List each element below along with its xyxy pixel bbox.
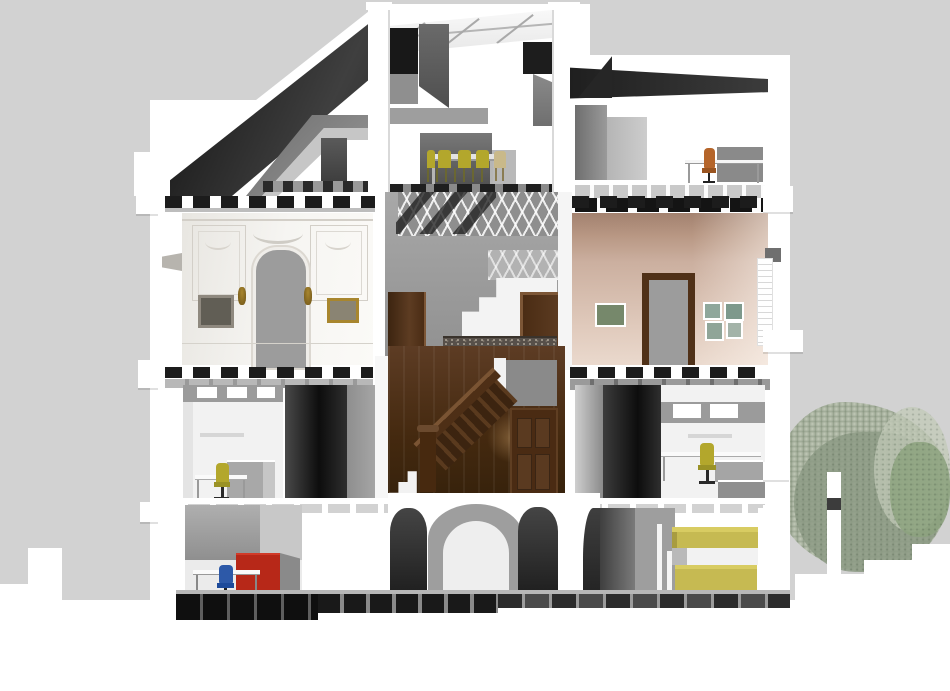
office-right	[661, 385, 765, 505]
dado-line	[182, 343, 373, 344]
office-chair-blue-back	[219, 565, 233, 583]
cornice-right	[763, 330, 803, 352]
framed-picture	[726, 321, 743, 339]
ceiling-panel	[710, 404, 738, 418]
cornice-molding-line	[182, 219, 373, 221]
attic-desk-leg	[757, 164, 759, 183]
vault-pier-partial	[583, 508, 600, 592]
attic-gray-band	[388, 108, 488, 124]
structural-column-dark	[285, 385, 347, 502]
slab-line-left	[165, 208, 375, 212]
salon-door-frame	[642, 273, 695, 365]
office-chair-yellow-back	[216, 463, 229, 483]
ground-step	[912, 544, 950, 562]
ceiling-panel	[197, 387, 217, 398]
attic-left-door	[321, 138, 347, 182]
vault-pier	[390, 508, 427, 594]
ground-step	[864, 560, 950, 576]
foliage-blob-bright	[890, 442, 950, 537]
newel-cap	[417, 425, 439, 432]
framed-picture-gold	[327, 298, 359, 323]
dining-chair-legs	[427, 168, 489, 182]
newel-post	[420, 430, 436, 492]
ceiling-panel	[673, 404, 701, 418]
stairwell-white-edge	[558, 192, 572, 370]
vault-pier	[518, 507, 558, 594]
dining-chair	[438, 150, 451, 168]
attic-office-wall	[575, 105, 607, 180]
architectural-section-scene	[0, 0, 950, 691]
dining-chair-beige	[494, 151, 506, 168]
dining-chair-beige-legs	[495, 168, 505, 181]
wall-white-strip	[375, 356, 388, 502]
ground-step	[795, 574, 950, 604]
stucco-salon	[182, 213, 373, 365]
cornice-left	[138, 360, 158, 388]
attic-left-floor-tiles	[263, 181, 375, 192]
office-chair-yellow-back	[700, 443, 714, 465]
joist-dashes-right	[572, 196, 767, 208]
foundation-tiles-mid	[318, 594, 498, 613]
salon-arched-doorway	[253, 247, 309, 368]
office-chair-orange-back	[704, 148, 715, 168]
storage-wall-dark	[600, 508, 635, 592]
door-panel	[517, 418, 532, 448]
stucco-panel	[310, 225, 368, 301]
garden-wall	[827, 510, 841, 574]
whiteboard	[200, 433, 244, 437]
backdrop-notch	[0, 584, 30, 600]
cornice-right	[763, 186, 793, 212]
wall-sconce	[238, 287, 246, 305]
door-panel	[535, 418, 550, 448]
office-chair-base	[699, 481, 715, 484]
attic-office-panel	[607, 117, 647, 180]
wall-strips-gray	[575, 385, 603, 502]
dining-chair	[427, 150, 435, 168]
framed-picture	[703, 302, 722, 320]
salon-door	[649, 280, 688, 365]
dining-chair	[458, 150, 471, 168]
office-left	[183, 385, 283, 502]
office-chair-stem	[706, 470, 709, 481]
cabinet-upper	[715, 460, 763, 482]
foundation-tiles-left	[176, 594, 318, 620]
framed-picture	[595, 303, 626, 327]
ceiling-panel	[227, 387, 247, 398]
attic-office-desk	[685, 160, 763, 164]
dining-chair	[476, 150, 489, 168]
garden-wall	[827, 472, 841, 498]
vault-arch-inner	[443, 521, 509, 592]
trellis-shadow-patch	[488, 250, 558, 280]
attic-gray-block	[388, 74, 418, 104]
wall-sconce	[304, 287, 312, 305]
joist-dashes-left	[165, 367, 373, 378]
ceiling-panel	[257, 387, 275, 398]
cornice-left	[140, 502, 158, 522]
stucco-door-crest	[253, 223, 303, 244]
attic-dark-block	[388, 28, 418, 74]
framed-picture	[724, 302, 744, 321]
chimney-cap	[548, 2, 580, 10]
skylight-shadow-stripes	[396, 192, 496, 234]
framed-picture	[198, 295, 234, 328]
vault-gap	[558, 508, 583, 592]
structural-column-dark	[603, 385, 661, 502]
backdrop-notch	[28, 548, 62, 600]
beige-salon	[572, 213, 768, 365]
attic-dark-block-right	[523, 42, 555, 74]
cornice-right	[763, 462, 789, 480]
door-panel	[517, 454, 532, 490]
framed-picture	[705, 321, 724, 341]
cornice-roof-right	[768, 76, 790, 104]
cornice-left	[136, 190, 158, 214]
joist-dashes-right	[570, 367, 765, 378]
side-wall-panel	[183, 402, 193, 502]
garden-wall-cap	[827, 498, 841, 510]
stucco-flourish	[325, 234, 351, 250]
door-panel	[535, 454, 550, 490]
desk-leg	[663, 457, 665, 481]
office-chair-orange-stem	[708, 173, 710, 181]
attic-desk-leg	[688, 164, 690, 183]
dining-table-leg	[490, 161, 493, 184]
foundation-tiles-right	[498, 594, 790, 608]
chimney-cap	[366, 2, 392, 10]
office-chair-stem	[221, 487, 224, 497]
chimney-left	[368, 6, 390, 196]
storage-pillar	[657, 524, 662, 592]
whiteboard	[688, 434, 732, 438]
storage-wall-right	[758, 508, 788, 592]
red-cabinet-side	[280, 553, 300, 592]
stucco-flourish	[205, 234, 231, 250]
joist-dashes-left	[165, 196, 375, 208]
shelf-white-band	[672, 548, 760, 565]
